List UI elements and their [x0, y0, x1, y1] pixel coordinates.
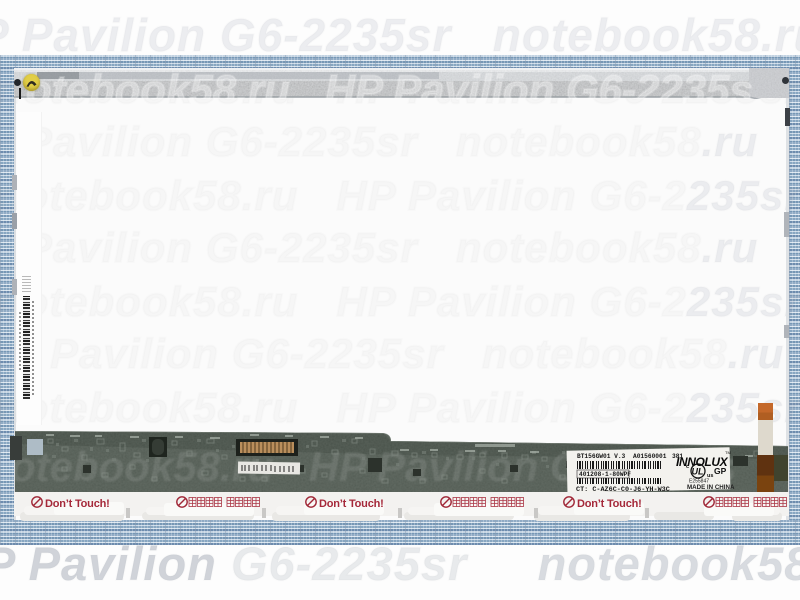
- svg-text:otebook58.ru HP Pavilion G6-: otebook58.ru HP Pavilion G6-2235s: [26, 68, 753, 99]
- svg-text:Don’t Touch!: Don’t Touch!: [319, 498, 384, 510]
- svg-text:TM: TM: [725, 450, 731, 455]
- svg-text:BT156GW01 V.3: BT156GW01 V.3: [577, 453, 626, 460]
- svg-text:MADE IN CHINA: MADE IN CHINA: [687, 484, 735, 491]
- svg-text:Don’t Touch!: Don’t Touch!: [45, 498, 110, 510]
- svg-text:c: c: [686, 464, 689, 470]
- svg-text:GP: GP: [714, 466, 727, 476]
- svg-text:A01560001: A01560001: [633, 453, 667, 460]
- svg-text:401208-1-80WPF: 401208-1-80WPF: [579, 471, 631, 478]
- svg-text:UL: UL: [692, 467, 704, 477]
- svg-text:Don’t Touch!: Don’t Touch!: [577, 498, 642, 510]
